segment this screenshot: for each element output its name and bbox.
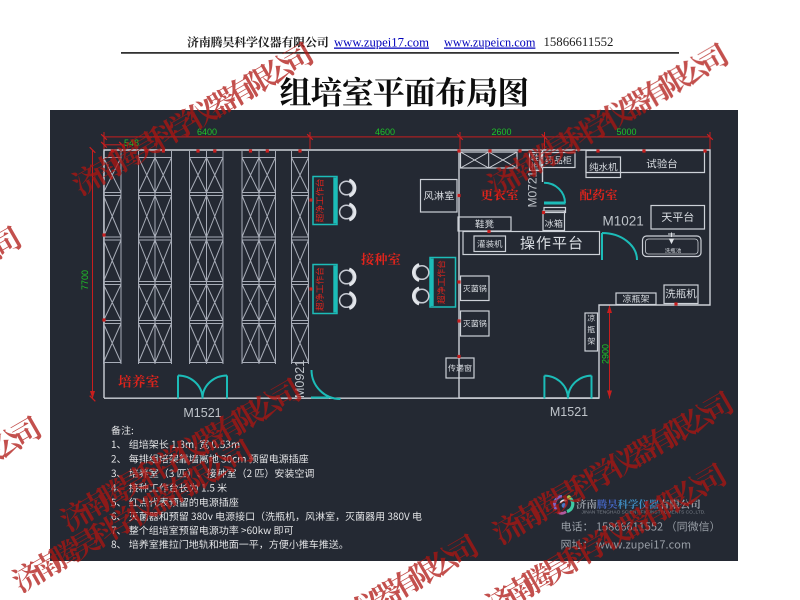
svg-text:JINAN TENGHAO SCIENTIFIC INSTR: JINAN TENGHAO SCIENTIFIC INSTRUMENTS CO.… xyxy=(582,510,706,516)
svg-text:M1521: M1521 xyxy=(183,406,221,420)
svg-text:2900: 2900 xyxy=(601,344,611,364)
svg-text:5000: 5000 xyxy=(616,127,636,137)
svg-text:M1521: M1521 xyxy=(550,405,588,419)
svg-text:15866611552: 15866611552 xyxy=(544,35,614,49)
svg-text:4600: 4600 xyxy=(375,127,395,137)
svg-text:www.zupeicn.com: www.zupeicn.com xyxy=(444,36,536,50)
svg-text:M1021: M1021 xyxy=(603,214,644,229)
svg-text:7700: 7700 xyxy=(80,270,90,290)
svg-text:2600: 2600 xyxy=(491,127,511,137)
svg-text:www.zupei17.com: www.zupei17.com xyxy=(334,36,429,50)
